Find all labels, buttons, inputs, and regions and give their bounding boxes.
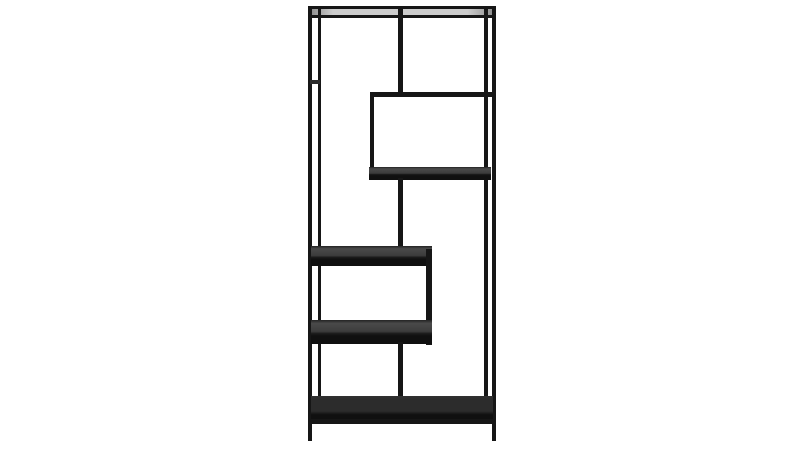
bottom-rail [308, 419, 496, 424]
box-top-rail [370, 92, 492, 97]
middle-shelf-lower [311, 320, 432, 344]
left-front-leg [308, 7, 312, 441]
product-photo [0, 0, 800, 449]
box-bottom-shelf [369, 167, 491, 180]
box-left-post [370, 94, 374, 176]
top-center-divider [398, 9, 403, 95]
middle-shelf-upper [311, 246, 432, 266]
right-back-leg [484, 9, 488, 400]
mid-divider-upper [398, 178, 403, 248]
left-post-joint [310, 80, 320, 84]
right-front-leg [492, 7, 496, 441]
mid-divider-lower [398, 342, 403, 400]
